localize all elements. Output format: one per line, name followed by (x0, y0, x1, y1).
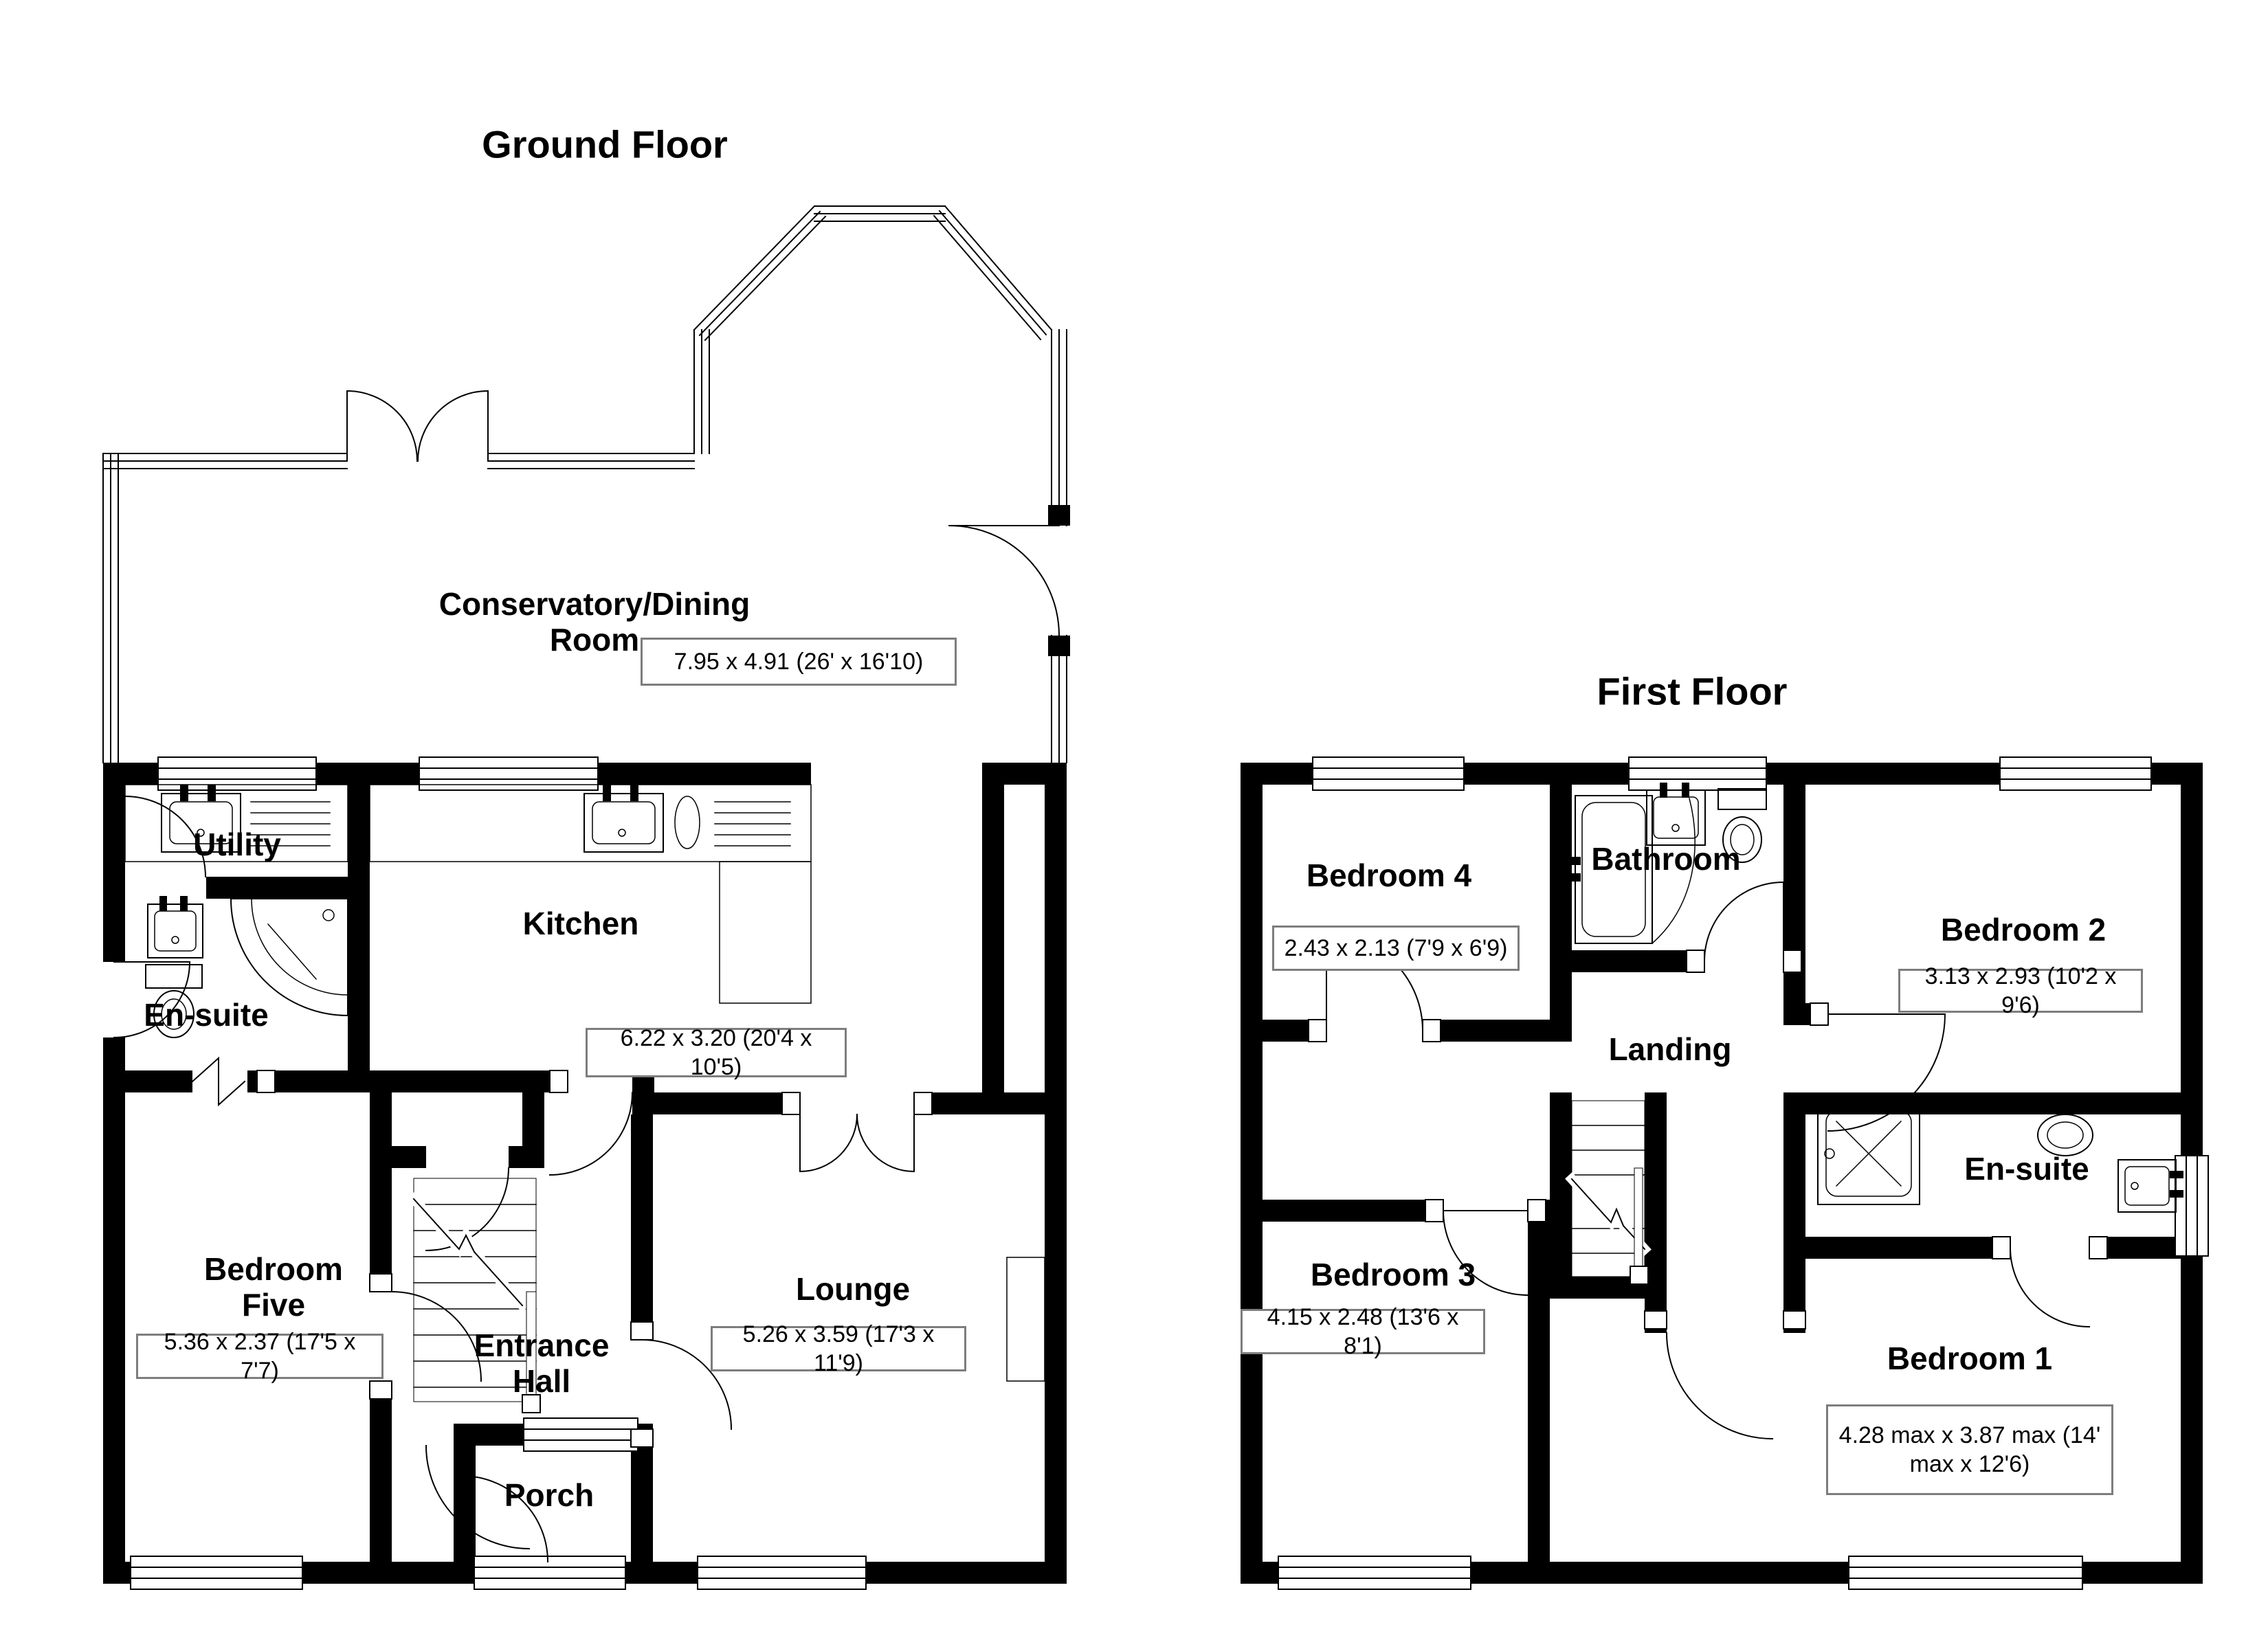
floorplan-drawing (0, 0, 2268, 1649)
dims-bedroom-4: 2.43 x 2.13 (7'9 x 6'9) (1272, 926, 1520, 971)
ff-stairs-icon (1572, 1101, 1648, 1284)
bedroom4-window-icon (1313, 757, 1464, 790)
dims-bedroom-five: 5.36 x 2.37 (17'5 x 7'7) (136, 1334, 383, 1379)
room-label-bathroom: Bathroom (1591, 842, 1740, 877)
room-label-lounge: Lounge (796, 1272, 910, 1307)
room-label-conservatory-line2: Room (550, 623, 639, 658)
gf-ensuite-sink-icon (148, 897, 203, 958)
room-label-bedroom-3: Bedroom 3 (1311, 1258, 1476, 1292)
conservatory-side-door-icon (949, 526, 1059, 636)
room-label-kitchen: Kitchen (523, 907, 639, 941)
room-label-gf-ensuite: En-suite (144, 998, 268, 1033)
kitchen-counter (370, 785, 811, 1003)
ff-ensuite-sink-icon (2118, 1160, 2183, 1212)
ff-ensuite-toilet-icon (2038, 1114, 2093, 1156)
ff-ensuite-shower-icon (1818, 1103, 1920, 1204)
bathroom-sink-icon (1647, 783, 1705, 845)
room-label-conservatory-line1: Conservatory/Dining (439, 587, 750, 622)
dims-lounge: 5.26 x 3.59 (17'3 x 11'9) (711, 1326, 966, 1371)
ground-floor-door-jambs (257, 1070, 932, 1447)
room-label-ff-ensuite: En-suite (1964, 1152, 2089, 1187)
ff-ensuite-door-icon (2010, 1248, 2089, 1327)
bedroom1-window-icon (1849, 1556, 2082, 1589)
bedroom-five-window-icon (131, 1556, 302, 1589)
ground-floor-doors (114, 391, 1059, 1562)
lounge-window-icon (698, 1556, 866, 1589)
bedroom3-window-icon (1278, 1556, 1471, 1589)
room-label-utility: Utility (193, 828, 281, 862)
bathroom-window-icon (1629, 757, 1766, 790)
ff-ensuite-window-icon (2175, 1156, 2208, 1256)
room-label-entrance-hall-line2: Hall (513, 1365, 570, 1399)
kitchen-sink-icon (584, 785, 790, 852)
room-label-landing: Landing (1609, 1033, 1732, 1067)
front-door-glazing-icon (524, 1418, 638, 1451)
dims-bedroom-1: 4.28 max x 3.87 max (14' max x 12'6) (1826, 1404, 2113, 1495)
dims-kitchen: 6.22 x 3.20 (20'4 x 10'5) (586, 1028, 847, 1077)
lounge-fireplace (1007, 1257, 1045, 1381)
room-label-bedroom-2: Bedroom 2 (1941, 913, 2106, 947)
room-label-bedroom-five-line2: Five (242, 1288, 305, 1323)
conservatory-double-door-icon (347, 391, 488, 461)
room-label-bedroom-1: Bedroom 1 (1887, 1342, 2052, 1376)
lounge-double-door-icon (800, 1114, 914, 1171)
dims-conservatory: 7.95 x 4.91 (26' x 16'10) (641, 638, 957, 686)
dims-bedroom-3: 4.15 x 2.48 (13'6 x 8'1) (1241, 1309, 1485, 1354)
ground-floor-title: Ground Floor (482, 122, 728, 167)
first-floor-title: First Floor (1597, 669, 1788, 714)
kitchen-window-icon (419, 757, 598, 790)
bedroom2-window-icon (2000, 757, 2151, 790)
bedroom-five-bifold-icon (192, 1058, 245, 1105)
floorplan-page: Ground Floor First Floor Conservatory/Di… (0, 0, 2268, 1649)
porch-window-icon (474, 1556, 625, 1589)
room-label-porch: Porch (504, 1479, 594, 1513)
kitchen-hall-door-icon (550, 1092, 632, 1175)
room-label-bedroom-five-line1: Bedroom (204, 1253, 343, 1287)
bedroom1-door-icon (1667, 1333, 1772, 1439)
dims-bedroom-2: 3.13 x 2.93 (10'2 x 9'6) (1898, 969, 2143, 1013)
room-label-entrance-hall-line1: Entrance (474, 1329, 610, 1363)
room-label-bedroom-4: Bedroom 4 (1307, 859, 1471, 893)
bathroom-door-icon (1704, 882, 1783, 961)
bedroom-five-door-icon (392, 1292, 481, 1381)
